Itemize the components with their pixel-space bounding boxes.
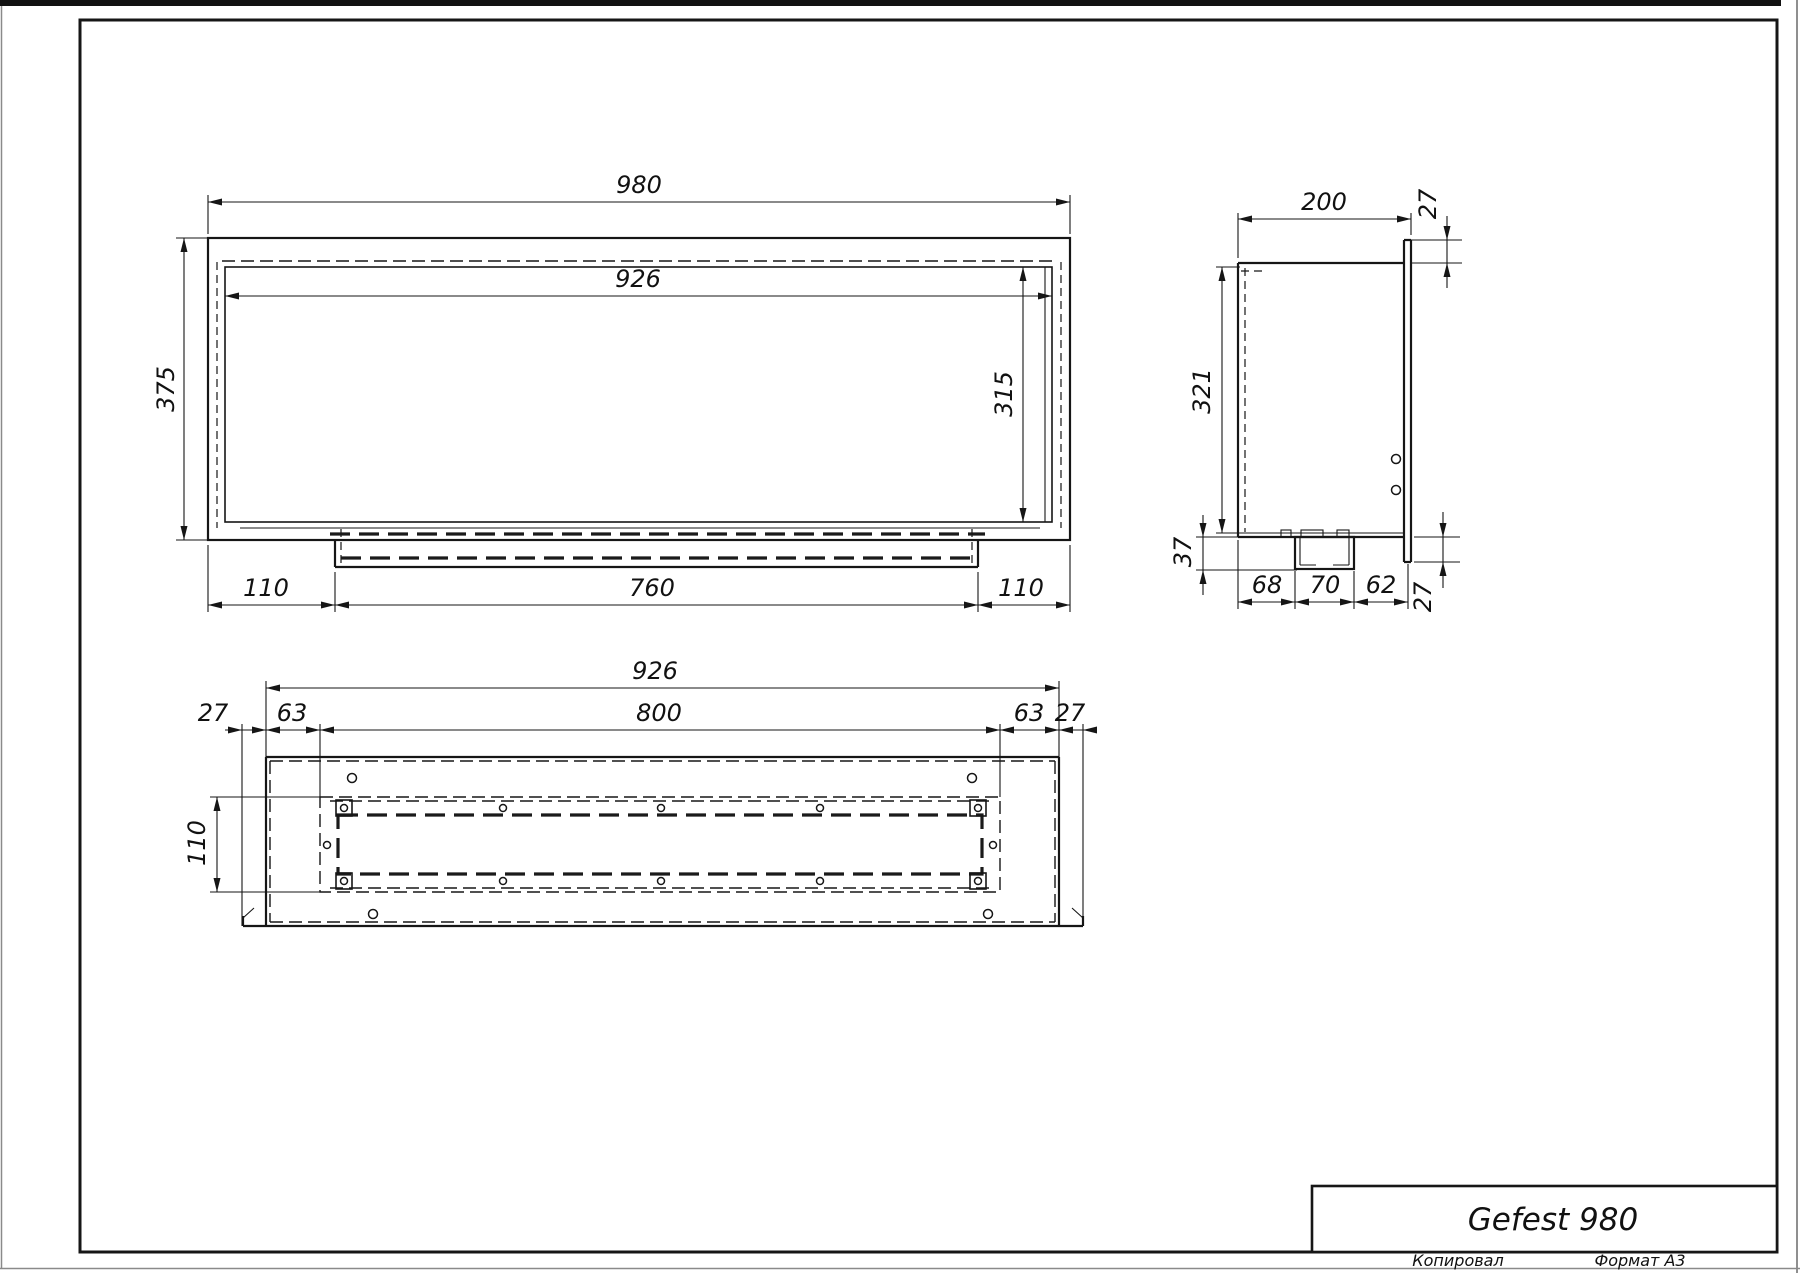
mount-hole <box>348 774 357 783</box>
side-bottom-left-label: 68 <box>1252 571 1283 599</box>
drawing-canvas: 980 926 375 315 110 <box>0 0 1800 1273</box>
front-bottom-dims: 110 760 110 <box>208 545 1070 612</box>
side-bottom-flange-label: 27 <box>1409 581 1437 612</box>
plan-view: 926 27 63 800 63 27 110 <box>183 657 1097 926</box>
side-bottom-center-label: 70 <box>1310 571 1341 599</box>
front-width-dim: 980 <box>208 171 1070 234</box>
format-label: Формат A3 <box>1594 1251 1685 1270</box>
side-bottom-dims: 68 70 62 <box>1238 540 1408 609</box>
mount-hole <box>968 774 977 783</box>
side-top-flange-dim: 27 <box>1411 188 1462 288</box>
scan-top-strip <box>0 0 1781 6</box>
front-width-label: 980 <box>616 171 662 199</box>
side-inner-height-label: 321 <box>1188 368 1216 414</box>
plan-inner-width-label: 926 <box>632 657 678 685</box>
front-bottom-left-label: 110 <box>243 574 289 602</box>
side-inner-height-dim: 321 <box>1188 267 1240 533</box>
flange-hole <box>1392 455 1401 464</box>
plan-tray-depth-dim: 110 <box>183 797 330 892</box>
plan-right-inset-label: 63 <box>1014 699 1045 727</box>
front-inner-height-label: 315 <box>990 371 1018 417</box>
side-bottom-flange-dim: 27 <box>1409 512 1460 612</box>
copied-label: Копировал <box>1412 1251 1503 1270</box>
drawing-border <box>80 20 1777 1252</box>
mount-hole <box>369 910 378 919</box>
title-block: Gefest 980 Копировал Формат A3 <box>1312 1186 1777 1270</box>
front-height-label: 375 <box>152 366 180 412</box>
side-depth-label: 200 <box>1301 188 1347 216</box>
side-tray-drop-label: 37 <box>1169 536 1197 567</box>
front-height-dim: 375 <box>152 238 210 540</box>
side-view-outline <box>1238 240 1411 569</box>
front-inner-height-dim: 315 <box>990 267 1045 522</box>
plan-tray-depth-label: 110 <box>183 820 211 866</box>
side-top-flange-label: 27 <box>1414 188 1442 219</box>
plan-burner-width-label: 800 <box>636 699 682 727</box>
drawing-title: Gefest 980 <box>1468 1202 1638 1238</box>
front-view: 980 926 375 315 110 <box>152 171 1070 612</box>
page-frame <box>0 0 1800 1273</box>
mount-hole <box>984 910 993 919</box>
side-bottom-right-label: 62 <box>1366 571 1397 599</box>
plan-left-margin-label: 27 <box>198 699 229 727</box>
drawing-page: 980 926 375 315 110 <box>0 0 1800 1273</box>
plan-right-margin-label: 27 <box>1055 699 1086 727</box>
side-depth-dim: 200 <box>1238 188 1411 258</box>
side-view: 200 27 321 37 68 <box>1169 188 1462 612</box>
plan-burner-assembly <box>320 797 1000 892</box>
front-inner-width-label: 926 <box>615 265 661 293</box>
plan-left-inset-label: 63 <box>277 699 308 727</box>
front-bottom-right-label: 110 <box>998 574 1044 602</box>
plan-view-outline <box>243 757 1083 926</box>
front-bottom-center-label: 760 <box>629 574 675 602</box>
front-inner-width-dim: 926 <box>225 265 1052 300</box>
flange-hole <box>1392 486 1401 495</box>
